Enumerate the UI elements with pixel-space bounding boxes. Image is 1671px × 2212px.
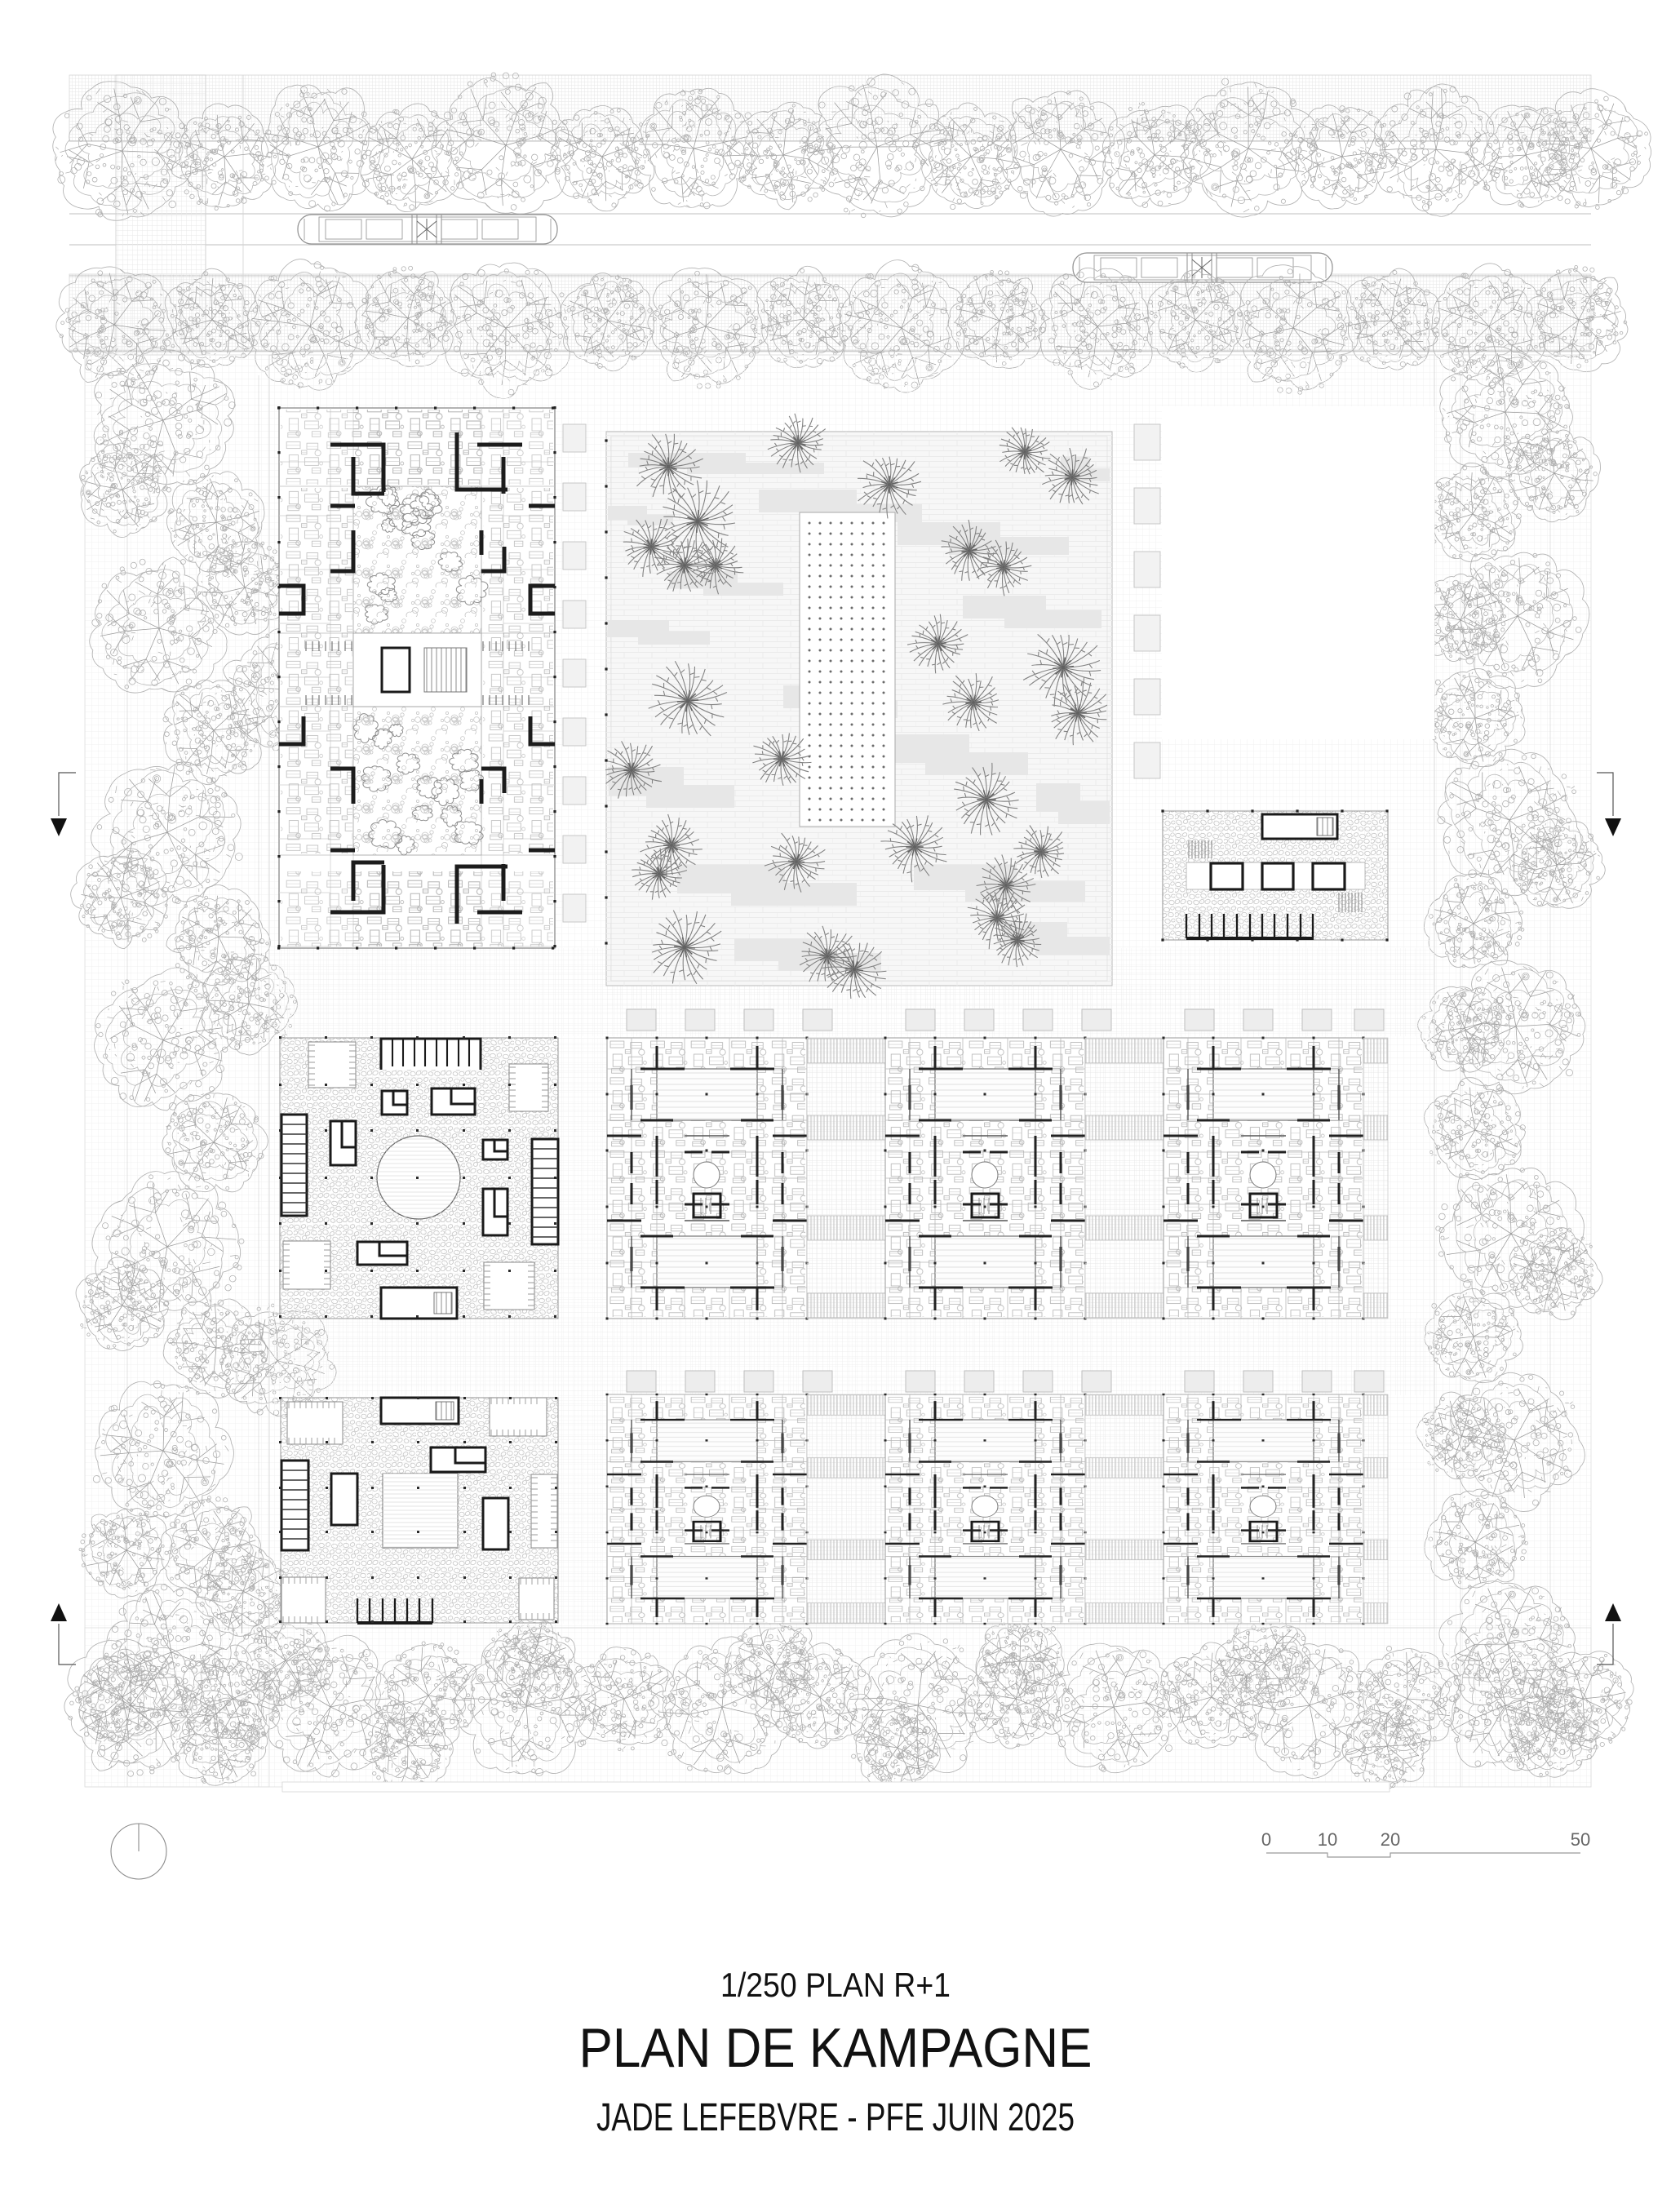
svg-text:0: 0 [1261,1829,1271,1850]
svg-text:1/250 PLAN R+1: 1/250 PLAN R+1 [720,1966,951,2004]
svg-text:JADE LEFEBVRE - PFE JUIN 2025: JADE LEFEBVRE - PFE JUIN 2025 [596,2096,1075,2139]
svg-text:PLAN DE KAMPAGNE: PLAN DE KAMPAGNE [579,2017,1093,2079]
svg-text:50: 50 [1571,1829,1590,1850]
svg-text:10: 10 [1318,1829,1337,1850]
svg-text:20: 20 [1381,1829,1400,1850]
